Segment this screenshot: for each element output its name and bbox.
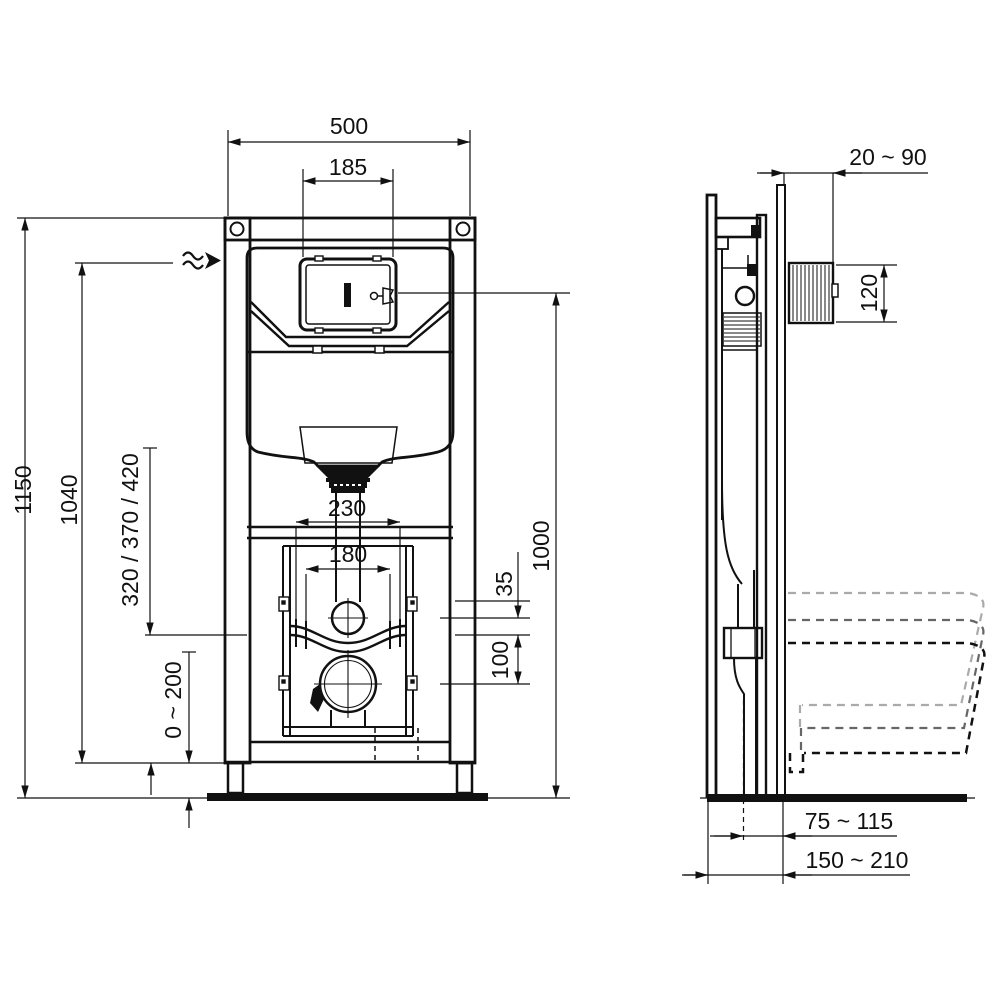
side-frame (707, 185, 785, 797)
label-box-height: 120 (856, 274, 882, 312)
wc-bowl-position-mid (788, 620, 983, 752)
plate-slot (344, 283, 351, 307)
flush-plate-box-side (789, 263, 838, 323)
cistern-side (722, 249, 761, 628)
label-outlet-to-wall: 75 ~ 115 (805, 808, 893, 834)
leg-left (228, 763, 243, 793)
floor-slab-side (707, 794, 967, 802)
side-view: 20 ~ 90 120 75 ~ 115 150 ~ 210 (682, 144, 984, 884)
label-offset-small: 35 (491, 571, 517, 597)
label-offset-outlet: 100 (487, 641, 513, 679)
dim-offset-outlet (440, 635, 530, 684)
wc-bowl-position-low (788, 643, 984, 772)
outlet-clamp (310, 684, 324, 712)
label-foot-adjust: 0 ~ 200 (160, 661, 186, 738)
water-supply-icon (183, 252, 221, 269)
outlet-bend-side (724, 628, 762, 840)
hanger-hole-right (457, 223, 470, 236)
front-view: 500 185 1150 1040 320 / 370 / 420 0 ~ 20… (10, 113, 570, 828)
front-dimensions (17, 130, 570, 828)
mounting-panel (777, 185, 785, 797)
cistern-inner-panel (300, 427, 397, 463)
installation-drawing: 500 185 1150 1040 320 / 370 / 420 0 ~ 20… (0, 0, 1000, 1000)
dim-wall-finish (757, 173, 928, 262)
foot-plate (207, 793, 488, 801)
label-frame-depth: 150 ~ 210 (806, 847, 909, 873)
fill-valve (736, 287, 754, 305)
label-overall-width: 500 (330, 113, 368, 139)
leg-right (457, 763, 472, 793)
waste-outlet-front (310, 650, 418, 761)
flush-valve-hatch (723, 313, 761, 346)
label-supply-height: 1040 (56, 474, 82, 525)
wc-bowl-outlines (788, 593, 984, 772)
drawing-canvas: 500 185 1150 1040 320 / 370 / 420 0 ~ 20… (0, 0, 1000, 1000)
label-outlet-heights: 320 / 370 / 420 (117, 453, 143, 606)
label-wall-finish: 20 ~ 90 (849, 144, 926, 170)
label-cutout-width: 185 (329, 154, 367, 180)
dim-outlet-heights (143, 448, 247, 635)
dim-cutout-width (303, 169, 393, 257)
flush-plate-box-front (300, 256, 396, 333)
label-bolt-spacing: 180 (329, 541, 367, 567)
label-overall-height: 1150 (10, 465, 36, 514)
hanger-hole-left (231, 223, 244, 236)
wc-bowl-position-high (788, 593, 983, 730)
label-plate-height: 1000 (528, 520, 554, 571)
flush-valve-seat (316, 466, 380, 493)
label-pipe-spacing: 230 (328, 495, 366, 521)
